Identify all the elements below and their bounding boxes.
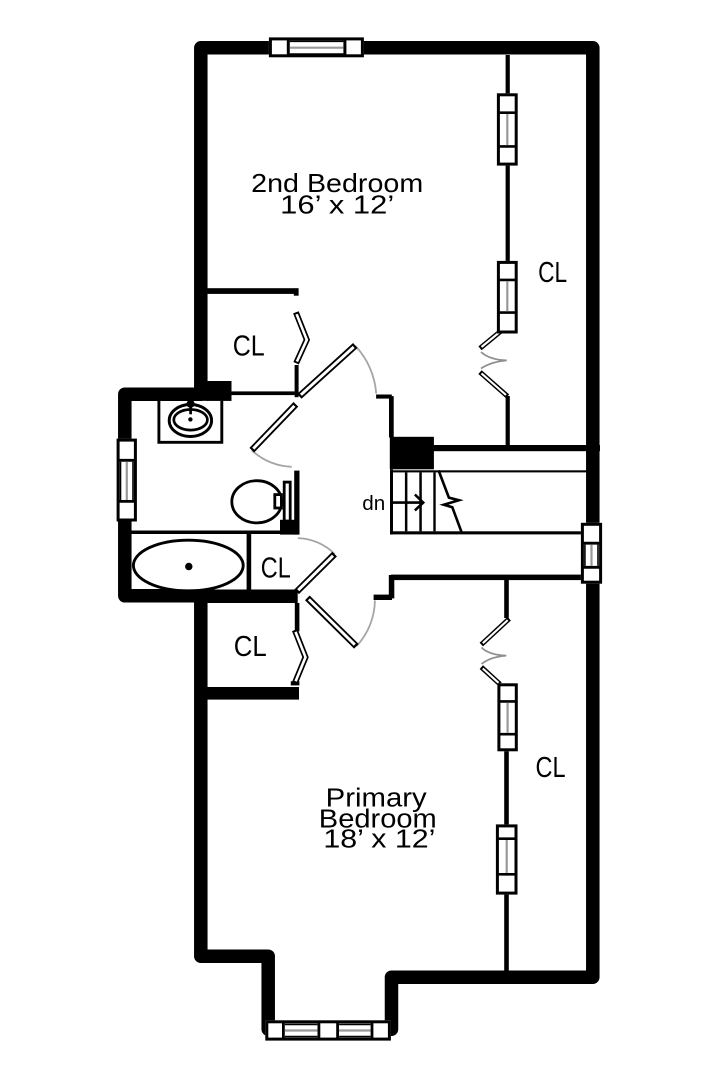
svg-text:dn: dn (362, 492, 385, 515)
svg-text:CL: CL (536, 752, 566, 784)
svg-text:CL: CL (233, 331, 265, 363)
svg-text:CL: CL (261, 553, 291, 585)
svg-text:16’ x 12’: 16’ x 12’ (280, 190, 394, 220)
svg-text:CL: CL (538, 257, 567, 289)
svg-text:18’ x 12’: 18’ x 12’ (323, 826, 435, 854)
svg-text:CL: CL (234, 631, 267, 663)
